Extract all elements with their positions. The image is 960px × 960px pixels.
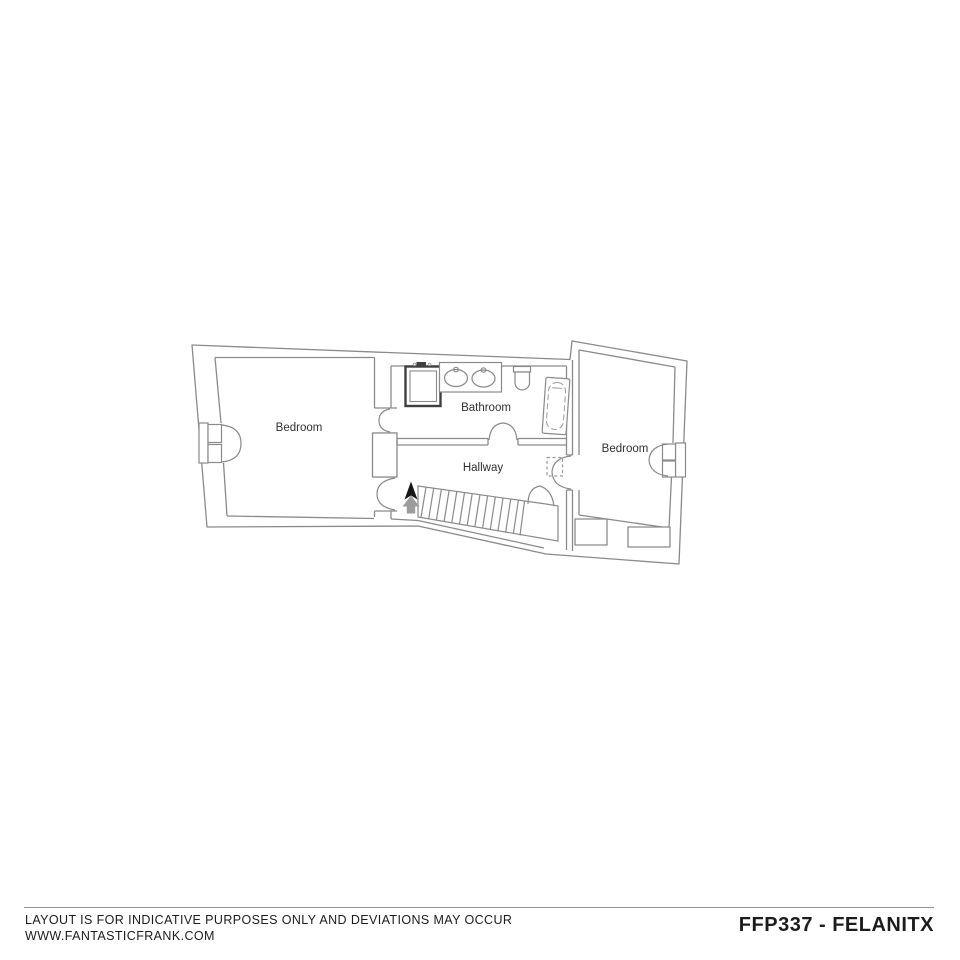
window-left-bedroom xyxy=(199,423,241,463)
stair-tread xyxy=(436,489,441,520)
footer-reference: FFP337 - FELANITX xyxy=(739,914,934,937)
stair-tread xyxy=(513,500,518,533)
room-label-hallway: Hallway xyxy=(463,462,504,474)
stairs-landing-line xyxy=(520,501,525,536)
room-label-bathroom: Bathroom xyxy=(461,402,511,414)
bottom-wall-niche xyxy=(628,527,670,547)
room-label-bedroom-left: Bedroom xyxy=(276,422,323,434)
sinks-icon xyxy=(440,363,502,393)
wall-pier xyxy=(373,433,398,477)
footer-disclaimer: LAYOUT IS FOR INDICATIVE PURPOSES ONLY A… xyxy=(25,912,512,944)
door-bedroom-left-upper xyxy=(379,409,390,432)
stair-tread xyxy=(506,499,511,532)
floor-plan-page: Bedroom Bathroom Hallway Bedroom LAYOUT … xyxy=(0,0,960,960)
toilet-icon xyxy=(514,367,531,390)
stair-tread xyxy=(444,490,449,521)
bathtub-icon xyxy=(542,377,570,435)
stair-tread xyxy=(429,488,434,519)
stair-tread xyxy=(421,487,426,517)
stair-tread xyxy=(460,493,465,524)
bathroom-fixtures-group xyxy=(406,362,570,435)
dashed-opening-marker xyxy=(547,458,563,477)
doors-windows-group xyxy=(199,409,686,510)
stair-tread xyxy=(483,496,488,528)
footer-disclaimer-line2: WWW.FANTASTICFRANK.COM xyxy=(25,928,512,944)
bottom-wall-niche xyxy=(575,519,607,545)
stair-tread xyxy=(452,492,457,523)
stairs-outline xyxy=(418,486,558,541)
footer-divider xyxy=(24,907,934,908)
shower-icon xyxy=(406,362,441,406)
window-right-bedroom xyxy=(649,443,686,477)
stairs-group xyxy=(418,486,558,541)
door-bedroom-left-lower xyxy=(377,478,395,510)
hallway-top-wall xyxy=(397,439,567,446)
stair-tread xyxy=(475,495,480,527)
footer-disclaimer-line1: LAYOUT IS FOR INDICATIVE PURPOSES ONLY A… xyxy=(25,912,512,928)
door-bathroom xyxy=(489,423,517,440)
floor-plan-drawing: Bedroom Bathroom Hallway Bedroom xyxy=(0,0,960,960)
stair-tread xyxy=(490,497,495,530)
room-label-bedroom-right: Bedroom xyxy=(602,443,649,455)
stair-tread xyxy=(498,498,503,531)
below-stairs-wall xyxy=(418,521,544,549)
stair-tread xyxy=(467,494,472,526)
bedroom-right-inner-wall xyxy=(579,350,675,528)
door-bedroom-right xyxy=(552,456,571,489)
bedroom-left-inner-wall xyxy=(215,358,375,519)
